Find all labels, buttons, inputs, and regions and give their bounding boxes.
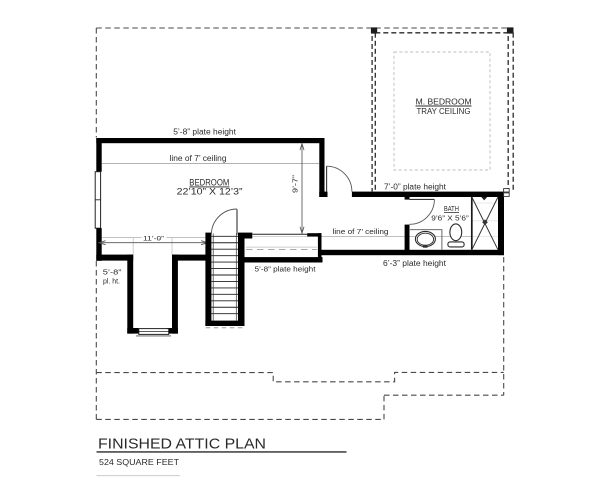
svg-text:524 SQUARE FEET: 524 SQUARE FEET bbox=[99, 457, 180, 467]
svg-text:5’-8” plate height: 5’-8” plate height bbox=[255, 265, 317, 274]
svg-text:9’6” X 5’6”: 9’6” X 5’6” bbox=[431, 213, 469, 222]
svg-text:BATH: BATH bbox=[444, 204, 459, 213]
svg-text:6’-3” plate height: 6’-3” plate height bbox=[383, 259, 447, 268]
svg-text:22’10” X 12’3”: 22’10” X 12’3” bbox=[177, 186, 243, 196]
svg-text:5’-8”: 5’-8” bbox=[103, 267, 122, 276]
svg-text:line of 7’ ceiling: line of 7’ ceiling bbox=[333, 227, 389, 236]
svg-text:pl. ht.: pl. ht. bbox=[103, 276, 120, 285]
svg-text:9’-7”: 9’-7” bbox=[292, 174, 299, 193]
svg-text:line of 7’ ceiling: line of 7’ ceiling bbox=[170, 154, 227, 163]
svg-text:TRAY CEILING: TRAY CEILING bbox=[417, 106, 471, 116]
svg-text:FINISHED ATTIC PLAN: FINISHED ATTIC PLAN bbox=[98, 436, 266, 453]
svg-text:5’-8” plate height: 5’-8” plate height bbox=[173, 127, 237, 136]
svg-text:M. BEDROOM: M. BEDROOM bbox=[416, 96, 472, 106]
svg-text:11’-0”: 11’-0” bbox=[143, 236, 164, 243]
svg-text:7’-0” plate height: 7’-0” plate height bbox=[384, 183, 447, 192]
